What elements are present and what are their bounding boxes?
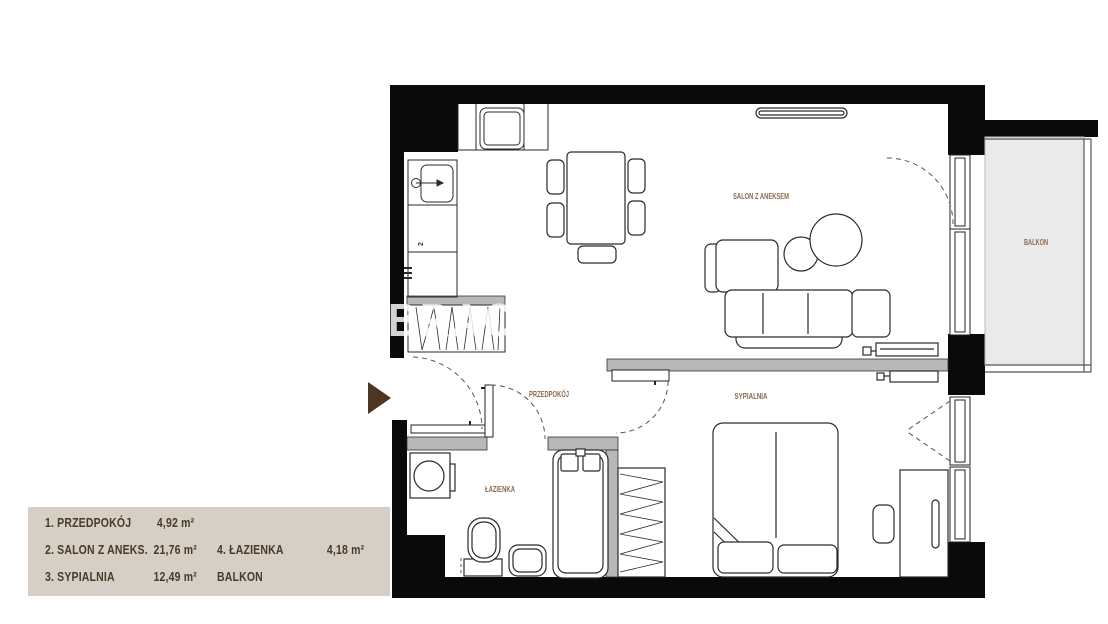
window-balcony-door-salon xyxy=(887,155,970,229)
window-fixed-salon xyxy=(950,229,970,335)
legend-room-label: 2. SALON Z ANEKS. xyxy=(45,543,148,557)
coffee-tables xyxy=(784,214,862,271)
dining-table-set xyxy=(547,152,645,263)
dining-bench xyxy=(578,246,616,263)
dining-table xyxy=(567,152,625,244)
watermark: BRACH xyxy=(388,295,546,347)
balcony xyxy=(985,137,1091,372)
radiator-salon xyxy=(863,343,938,356)
room-label-sypialnia: SYPIALNIA xyxy=(735,391,768,401)
legend-room-area: 12,49 m² xyxy=(154,570,193,584)
sofa-seat xyxy=(725,290,853,337)
sofa-section-right xyxy=(852,290,890,337)
bedroom-wardrobe xyxy=(618,468,665,577)
balcony-floor xyxy=(985,137,1084,365)
wall-segment xyxy=(983,120,1098,137)
legend-room-area: 4,18 m² xyxy=(327,543,363,557)
wall-segment xyxy=(392,535,445,580)
legend-room-area: 4,92 m² xyxy=(157,516,193,530)
legend-room-area: 21,76 m² xyxy=(154,543,193,557)
wall-shelf xyxy=(756,108,847,118)
dining-chair xyxy=(547,160,564,194)
legend-room-label: 4. ŁAZIENKA xyxy=(217,543,284,557)
legend-room-label: BALKON xyxy=(217,570,263,584)
bathtub xyxy=(553,449,608,578)
dining-chair xyxy=(547,203,564,237)
room-label-przedpokoj: PRZEDPOKÓJ xyxy=(529,388,569,399)
window-fixed-bedroom xyxy=(950,467,970,542)
room-label-salon: SALON Z ANEKSEM xyxy=(733,191,789,201)
desk xyxy=(900,470,948,577)
wall-segment xyxy=(392,577,985,598)
washing-machine xyxy=(410,453,455,498)
kitchen-counter-top xyxy=(458,104,548,150)
wall-segment xyxy=(392,420,407,538)
kitchen-sink xyxy=(412,165,454,202)
room-label-balkon: BALKON xyxy=(1024,237,1048,247)
wall-bath-hall-right xyxy=(548,437,618,450)
bedroom-door xyxy=(612,370,669,433)
legend-room-label: 3. SYPIALNIA xyxy=(45,570,115,584)
floorplan-page: SALON Z ANEKSEM PRZEDPOKÓJ SYPIALNIA ŁAZ… xyxy=(0,0,1108,624)
desk-chair xyxy=(873,505,894,543)
coffee-table-large xyxy=(810,214,862,266)
wall-segment xyxy=(948,334,985,395)
bed xyxy=(713,423,838,577)
legend: 1. PRZEDPOKÓJ 4,92 m² 2. SALON Z ANEKS. … xyxy=(28,507,390,596)
pillow xyxy=(778,545,837,573)
bedroom-furniture xyxy=(618,371,948,577)
kitchen-number-label: 2 xyxy=(418,242,425,246)
dining-chair xyxy=(628,201,645,235)
wall-bath-hall-left xyxy=(407,437,487,450)
pillow xyxy=(718,542,773,573)
salon-furniture xyxy=(705,108,938,356)
legend-room-label: 1. PRZEDPOKÓJ xyxy=(45,516,131,530)
wall-segment xyxy=(948,85,985,155)
window-balcony-door-bedroom xyxy=(906,397,970,465)
kitchen-counter-left xyxy=(404,160,457,297)
entrance-arrow-icon xyxy=(368,382,391,414)
toilet xyxy=(461,518,502,576)
wall-segment xyxy=(390,85,948,104)
entrance-door xyxy=(411,357,486,433)
radiator-bedroom xyxy=(877,371,938,382)
washbasin xyxy=(509,545,546,576)
wall-salon-bedroom xyxy=(607,359,948,371)
sofa-chaise xyxy=(716,240,778,292)
dining-chair xyxy=(628,159,645,193)
room-label-lazienka: ŁAZIENKA xyxy=(485,484,515,494)
